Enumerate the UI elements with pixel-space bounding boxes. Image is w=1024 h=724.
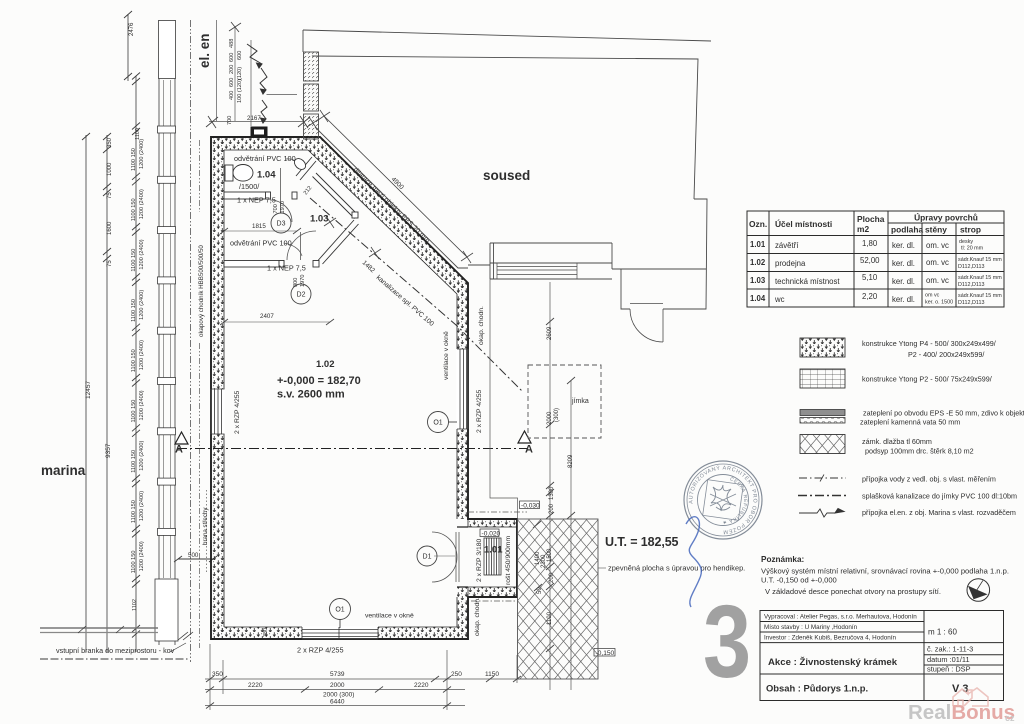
svg-text:2 x RZP 4/255: 2 x RZP 4/255 xyxy=(476,389,483,433)
svg-text:2,20: 2,20 xyxy=(862,292,878,301)
svg-text:splašková kanalizace do jímky: splašková kanalizace do jímky PVC 100 dl… xyxy=(862,492,1017,501)
svg-text:ker. dl.: ker. dl. xyxy=(892,277,915,286)
svg-text:č. zak.: 1-11-3: č. zak.: 1-11-3 xyxy=(927,645,973,654)
svg-text:1102: 1102 xyxy=(132,599,138,611)
svg-text:jímka: jímka xyxy=(571,398,589,405)
svg-text:1200 (2400): 1200 (2400) xyxy=(139,390,145,420)
svg-text:2000: 2000 xyxy=(330,682,345,689)
svg-text:1200 (2400): 1200 (2400) xyxy=(139,189,145,219)
svg-text:Obsah : Půdorys 1.n.p.: Obsah : Půdorys 1.n.p. xyxy=(766,683,868,694)
svg-text:1100 150: 1100 150 xyxy=(131,148,137,171)
svg-text:om. vc: om. vc xyxy=(926,276,949,285)
svg-text:om vc: om vc xyxy=(925,293,940,299)
svg-text:el. en: el. en xyxy=(197,33,212,68)
svg-text:700: 700 xyxy=(227,116,233,125)
svg-text:sádr.Knauf 15 mm: sádr.Knauf 15 mm xyxy=(958,275,1002,281)
svg-text:Výškový systém místní relativn: Výškový systém místní relativní, srovnáv… xyxy=(761,567,1009,576)
svg-text:1100: 1100 xyxy=(547,611,553,625)
svg-text:závětří: závětří xyxy=(775,241,799,250)
svg-text:U.T. = 182,55: U.T. = 182,55 xyxy=(605,535,679,549)
svg-text:75: 75 xyxy=(107,260,113,267)
svg-text:250: 250 xyxy=(451,671,462,678)
svg-text:U.T. -0,150 od +-0,000: U.T. -0,150 od +-0,000 xyxy=(761,576,837,585)
svg-text:1200 (2400): 1200 (2400) xyxy=(139,440,145,470)
svg-text:okap. chodn.: okap. chodn. xyxy=(478,306,485,345)
svg-text:1970: 1970 xyxy=(300,275,306,287)
svg-text:1100 150: 1100 150 xyxy=(131,500,137,523)
svg-text:podsyp 100mm drc. štěrk 8,10: podsyp 100mm drc. štěrk 8,10 m2 xyxy=(865,447,974,456)
svg-text:odvětrání PVC 100: odvětrání PVC 100 xyxy=(230,239,292,248)
svg-text:1200 (2400): 1200 (2400) xyxy=(139,139,145,169)
svg-text:O1: O1 xyxy=(335,607,344,614)
svg-text:-0,020: -0,020 xyxy=(482,530,501,537)
svg-text:Ozn.: Ozn. xyxy=(749,219,767,229)
svg-text:2000 (300): 2000 (300) xyxy=(323,692,354,699)
svg-text:s.v. 2600 mm: s.v. 2600 mm xyxy=(277,389,345,401)
svg-text:zateplení po obvodu EPS -E 50: zateplení po obvodu EPS -E 50 mm, zdivo … xyxy=(863,409,1024,418)
svg-text:ker. dl.: ker. dl. xyxy=(892,295,915,304)
svg-text:om. vc: om. vc xyxy=(926,258,949,267)
svg-text:1.04: 1.04 xyxy=(750,294,766,303)
svg-text:2 x RZP 4/255: 2 x RZP 4/255 xyxy=(297,646,344,655)
svg-text:1.03: 1.03 xyxy=(310,214,329,225)
svg-text:2609: 2609 xyxy=(547,326,553,340)
svg-text:1300: 1300 xyxy=(549,486,555,500)
svg-text:3: 3 xyxy=(703,585,751,700)
svg-text:Místo stavby : U Mariny ,Hod: Místo stavby : U Mariny ,Hodonín xyxy=(764,624,858,631)
svg-text:D112,D113: D112,D113 xyxy=(958,300,984,306)
svg-text:prodejna: prodejna xyxy=(775,259,806,268)
svg-text:50: 50 xyxy=(537,587,543,594)
svg-text:m2: m2 xyxy=(857,224,869,234)
svg-text:52,00: 52,00 xyxy=(860,256,880,265)
svg-text:zateplení kamenná vata 50 mm: zateplení kamenná vata 50 mm xyxy=(860,418,960,427)
svg-text:700: 700 xyxy=(273,204,279,213)
svg-text:ker. dl.: ker. dl. xyxy=(892,259,915,268)
svg-text:1600: 1600 xyxy=(107,221,113,235)
svg-text:strop: strop xyxy=(960,225,981,235)
svg-text:marina: marina xyxy=(41,463,86,478)
svg-text:tl: 20 mm: tl: 20 mm xyxy=(961,246,984,252)
svg-text:200: 200 xyxy=(229,65,235,74)
svg-text:75: 75 xyxy=(107,192,113,199)
svg-text:600: 600 xyxy=(229,78,235,87)
svg-text:A: A xyxy=(525,444,533,456)
svg-text:1200 (2400): 1200 (2400) xyxy=(139,541,145,571)
svg-text:wc: wc xyxy=(774,295,785,304)
svg-text:(300): (300) xyxy=(554,408,560,422)
svg-text:RealBonus: RealBonus xyxy=(908,701,1015,724)
svg-text:A: A xyxy=(175,444,183,456)
svg-text:soused: soused xyxy=(483,168,530,183)
svg-text:ventilace v okně: ventilace v okně xyxy=(443,331,450,380)
svg-text:2 x RZP 3/180: 2 x RZP 3/180 xyxy=(476,538,483,582)
svg-text:V základové desce ponechat otv: V základové desce ponechat otvory na pro… xyxy=(765,587,941,596)
svg-text:1815: 1815 xyxy=(252,223,266,230)
svg-text:přípojka el.en. z obj. Marina: přípojka el.en. z obj. Marina s vlast. r… xyxy=(862,508,1016,517)
svg-text:600: 600 xyxy=(229,53,235,62)
svg-text:2220: 2220 xyxy=(248,682,263,689)
svg-text:cz: cz xyxy=(1005,713,1015,723)
svg-text:konstrukce Ytong P4 - 500/ 3: konstrukce Ytong P4 - 500/ 300x249x499/ xyxy=(862,339,996,348)
svg-text:zámk. dlažba tl 60mm: zámk. dlažba tl 60mm xyxy=(862,437,932,446)
svg-text:přípojka vody z vedl. obj. s v: přípojka vody z vedl. obj. s vlast. měře… xyxy=(862,475,996,484)
svg-text:400: 400 xyxy=(229,91,235,100)
svg-text:1.01: 1.01 xyxy=(750,240,766,249)
svg-text:okapový chodník HBB500/500/50: okapový chodník HBB500/500/50 xyxy=(198,245,205,337)
svg-text:om. vc: om. vc xyxy=(926,241,949,250)
svg-text:12457: 12457 xyxy=(85,381,92,399)
svg-text:Plocha: Plocha xyxy=(857,214,885,224)
svg-text:380: 380 xyxy=(263,628,269,637)
svg-text:/1500/: /1500/ xyxy=(239,182,260,191)
svg-text:1100 150: 1100 150 xyxy=(131,249,137,272)
svg-text:1.02: 1.02 xyxy=(750,258,766,267)
svg-text:1200 (2400): 1200 (2400) xyxy=(139,290,145,320)
svg-text:500: 500 xyxy=(188,552,199,559)
svg-text:1200 (2400): 1200 (2400) xyxy=(139,239,145,269)
svg-text:6440: 6440 xyxy=(330,699,345,706)
svg-text:2 x RZP 4/255: 2 x RZP 4/255 xyxy=(234,390,241,434)
svg-text:1000: 1000 xyxy=(107,162,113,176)
svg-text:1,80: 1,80 xyxy=(862,239,878,248)
svg-text:vstupní branka do meziprostoru: vstupní branka do meziprostoru - kov xyxy=(56,646,175,655)
svg-text:200: 200 xyxy=(549,572,555,583)
svg-text:200: 200 xyxy=(549,503,555,514)
svg-text:Úpravy povrchů: Úpravy povrchů xyxy=(914,212,978,223)
svg-text:ventilace v okně: ventilace v okně xyxy=(365,613,414,620)
svg-text:ker. dl.: ker. dl. xyxy=(892,241,915,250)
svg-text:2476: 2476 xyxy=(129,22,135,36)
svg-text:8209: 8209 xyxy=(568,454,574,468)
svg-text:sádr.Knauf 15 mm: sádr.Knauf 15 mm xyxy=(958,257,1002,263)
svg-text:1150: 1150 xyxy=(485,671,499,678)
svg-text:1.04: 1.04 xyxy=(257,170,276,181)
svg-text:zpevněná plocha s úpravou pro: zpevněná plocha s úpravou pro hendikep. xyxy=(608,564,745,573)
svg-text:datum :01/11: datum :01/11 xyxy=(927,655,970,664)
svg-text:2000: 2000 xyxy=(547,411,553,425)
svg-text:1500: 1500 xyxy=(547,548,553,562)
svg-text:350: 350 xyxy=(107,137,113,148)
svg-text:stěny: stěny xyxy=(925,225,947,235)
svg-text:2407: 2407 xyxy=(260,313,274,320)
svg-text:9357: 9357 xyxy=(105,443,112,458)
svg-text:D112,D113: D112,D113 xyxy=(958,282,984,288)
svg-text:2167: 2167 xyxy=(247,115,261,122)
svg-text:konstrukce Ytong P2 - 500/ 7: konstrukce Ytong P2 - 500/ 75x249x599/ xyxy=(862,375,992,384)
svg-text:hrana střechy: hrana střechy xyxy=(202,507,209,545)
svg-text:technická místnost: technická místnost xyxy=(775,277,840,286)
svg-text:1 x NEP 7,5: 1 x NEP 7,5 xyxy=(237,196,276,205)
svg-text:D3: D3 xyxy=(277,221,286,228)
svg-text:1.02: 1.02 xyxy=(316,359,335,370)
svg-text:+-0,000 = 182,70: +-0,000 = 182,70 xyxy=(277,375,361,387)
svg-text:odvětrání PVC 100: odvětrání PVC 100 xyxy=(234,154,296,163)
svg-text:D112,D113: D112,D113 xyxy=(958,264,984,270)
svg-text:D2: D2 xyxy=(297,292,306,299)
svg-text:1200 (2400): 1200 (2400) xyxy=(139,491,145,521)
svg-text:m 1 : 60: m 1 : 60 xyxy=(928,628,957,637)
svg-text:stupeň : DSP: stupeň : DSP xyxy=(927,665,971,674)
svg-text:350: 350 xyxy=(212,671,223,678)
svg-text:ker. o. 1500: ker. o. 1500 xyxy=(925,300,953,306)
svg-text:1100 150: 1100 150 xyxy=(131,400,137,423)
svg-text:podlaha: podlaha xyxy=(891,225,923,235)
svg-text:(120): (120) xyxy=(237,67,243,80)
svg-text:600: 600 xyxy=(237,51,243,60)
svg-text:5,10: 5,10 xyxy=(862,273,878,282)
svg-text:1100 150: 1100 150 xyxy=(131,450,137,473)
svg-text:1100 150: 1100 150 xyxy=(131,299,137,322)
svg-text:1100 150: 1100 150 xyxy=(131,198,137,221)
svg-text:1200 (2400): 1200 (2400) xyxy=(139,340,145,370)
svg-text:2220: 2220 xyxy=(414,682,429,689)
svg-text:1100 150: 1100 150 xyxy=(131,349,137,372)
svg-text:800: 800 xyxy=(293,278,299,287)
svg-text:1970: 1970 xyxy=(280,201,286,213)
svg-text:Vypracoval : Atelier Pegas, s.: Vypracoval : Atelier Pegas, s.r.o. Merha… xyxy=(764,614,917,621)
svg-text:okap. chodn.: okap. chodn. xyxy=(474,597,481,636)
svg-text:Investor : Zdeněk Kubiš, Bezru: Investor : Zdeněk Kubiš, Bezručova 4, Ho… xyxy=(764,635,896,642)
svg-text:1100: 1100 xyxy=(135,128,141,140)
svg-text:5739: 5739 xyxy=(330,671,345,678)
svg-text:1100 150: 1100 150 xyxy=(131,550,137,573)
svg-text:Účel místnosti: Účel místnosti xyxy=(775,218,832,229)
svg-text:O1: O1 xyxy=(433,420,442,427)
svg-text:D1: D1 xyxy=(423,554,432,561)
svg-text:1 x NEP 7,5: 1 x NEP 7,5 xyxy=(267,264,306,273)
svg-text:-0,030: -0,030 xyxy=(521,502,540,509)
svg-text:Akce : Živnostenský krámek: Akce : Živnostenský krámek xyxy=(768,656,898,668)
svg-text:desky: desky xyxy=(959,239,973,245)
svg-text:P2 - 400/ 200x249x599/: P2 - 400/ 200x249x599/ xyxy=(908,350,984,359)
svg-text:rošt 450/900mm: rošt 450/900mm xyxy=(505,536,512,585)
svg-text:1.01: 1.01 xyxy=(484,545,503,556)
svg-text:Poznámka:: Poznámka: xyxy=(761,555,804,564)
svg-text:1.03: 1.03 xyxy=(750,276,766,285)
svg-text:488: 488 xyxy=(229,39,235,48)
svg-text:100 (120): 100 (120) xyxy=(237,79,243,103)
svg-text:sádr.Knauf 15 mm: sádr.Knauf 15 mm xyxy=(958,293,1002,299)
